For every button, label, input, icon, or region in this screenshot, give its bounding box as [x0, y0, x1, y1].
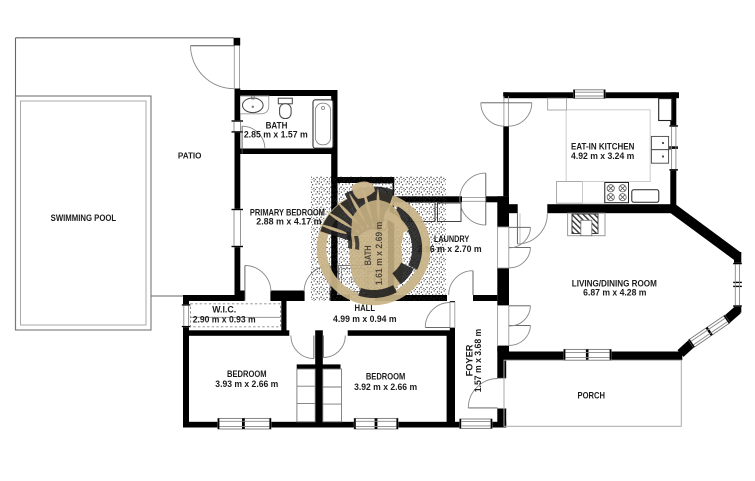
- svg-text:2.85 m x 1.57 m: 2.85 m x 1.57 m: [244, 129, 308, 140]
- svg-text:3.92 m x 2.66 m: 3.92 m x 2.66 m: [354, 381, 417, 392]
- svg-text:PATIO: PATIO: [178, 151, 202, 161]
- svg-text:PORCH: PORCH: [578, 389, 606, 400]
- svg-text:SWIMMING POOL: SWIMMING POOL: [51, 212, 117, 223]
- svg-text:1.61 m x 2.69 m: 1.61 m x 2.69 m: [373, 222, 384, 286]
- svg-text:BATH: BATH: [362, 245, 373, 265]
- svg-text:3.93 m x 2.66 m: 3.93 m x 2.66 m: [215, 378, 278, 389]
- svg-text:2.90 m x 0.93 m: 2.90 m x 0.93 m: [193, 314, 256, 325]
- svg-text:4.99 m x 0.94 m: 4.99 m x 0.94 m: [333, 313, 397, 324]
- svg-text:1.57 m x 3.68 m: 1.57 m x 3.68 m: [472, 329, 483, 393]
- svg-text:4.92 m x 3.24 m: 4.92 m x 3.24 m: [571, 150, 634, 161]
- svg-text:6.87 m x 4.28 m: 6.87 m x 4.28 m: [583, 287, 646, 298]
- svg-text:BEDROOM: BEDROOM: [366, 371, 406, 382]
